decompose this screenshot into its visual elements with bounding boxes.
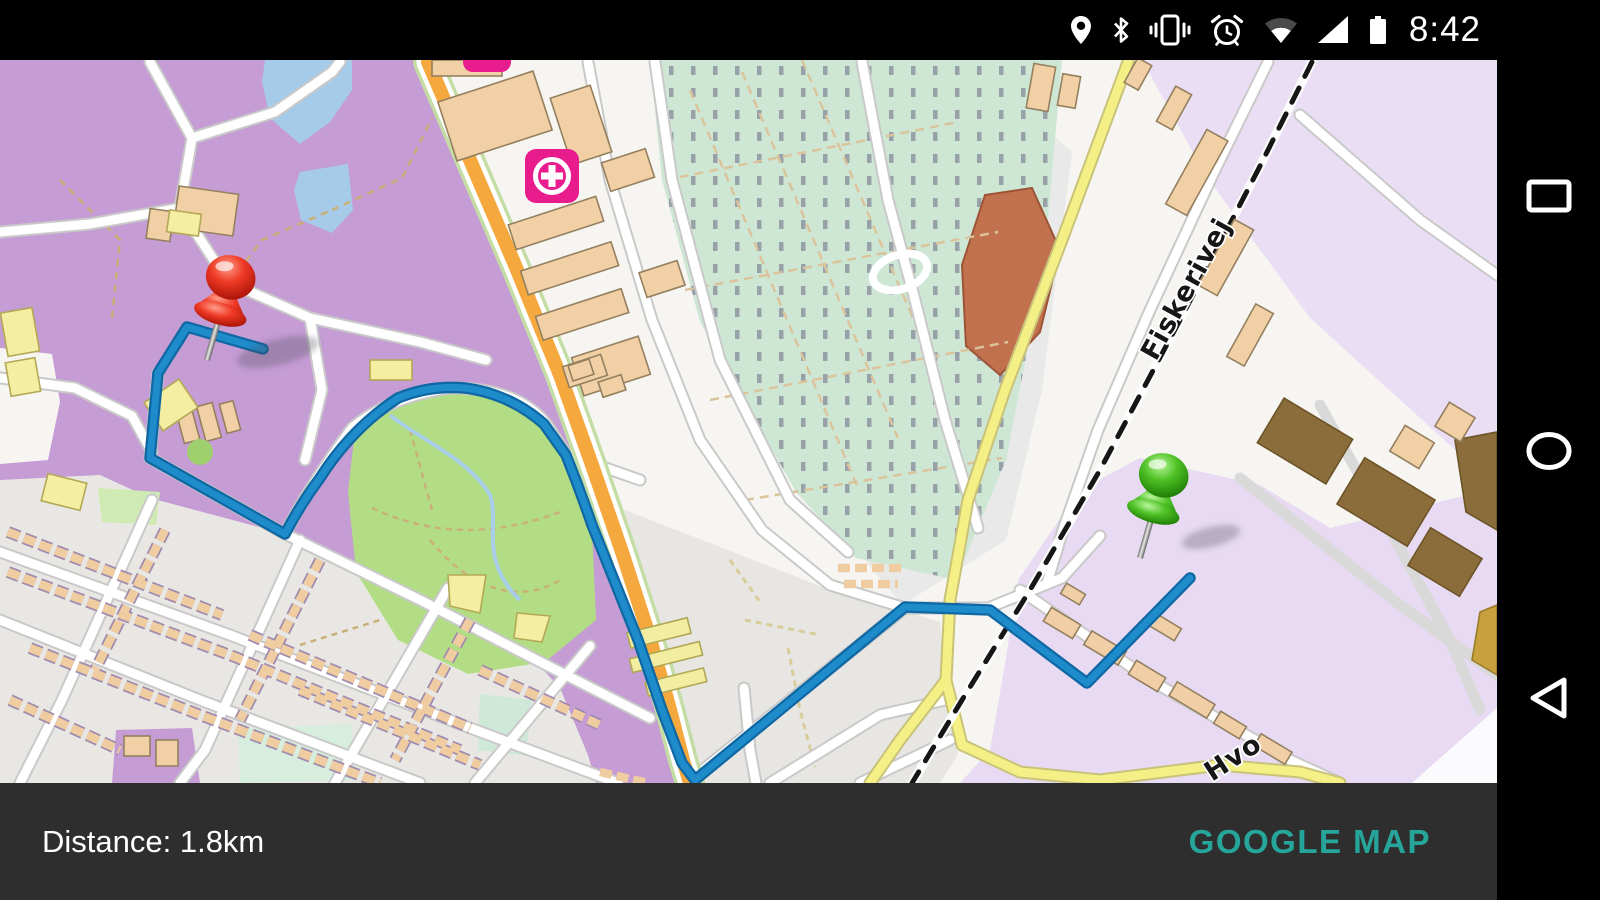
vibrate-icon bbox=[1149, 14, 1191, 46]
hospital-icon-partial bbox=[463, 60, 511, 72]
recent-apps-icon bbox=[1525, 177, 1573, 218]
google-map-button[interactable]: GOOGLE MAP bbox=[1185, 813, 1435, 871]
bottom-action-bar: Distance: 1.8km GOOGLE MAP bbox=[0, 783, 1497, 900]
recent-apps-button[interactable] bbox=[1497, 162, 1600, 232]
cell-signal-icon bbox=[1316, 15, 1350, 45]
android-nav-bar bbox=[1497, 0, 1600, 900]
back-icon bbox=[1526, 674, 1572, 725]
alarm-clock-icon bbox=[1208, 13, 1246, 47]
back-button[interactable] bbox=[1497, 664, 1600, 734]
bluetooth-icon bbox=[1110, 15, 1132, 45]
battery-icon bbox=[1367, 14, 1389, 46]
location-pin-icon bbox=[1069, 15, 1093, 45]
android-screen: 8:42 bbox=[0, 0, 1600, 900]
wifi-icon bbox=[1263, 15, 1299, 45]
clock-time: 8:42 bbox=[1409, 10, 1481, 50]
status-bar: 8:42 bbox=[0, 0, 1497, 60]
home-button[interactable] bbox=[1497, 417, 1600, 487]
home-icon bbox=[1524, 430, 1574, 475]
map-view[interactable]: Fiskerivej Hvo bbox=[0, 60, 1497, 783]
distance-label: Distance: 1.8km bbox=[42, 824, 264, 860]
map-canvas: Fiskerivej Hvo bbox=[0, 60, 1497, 783]
